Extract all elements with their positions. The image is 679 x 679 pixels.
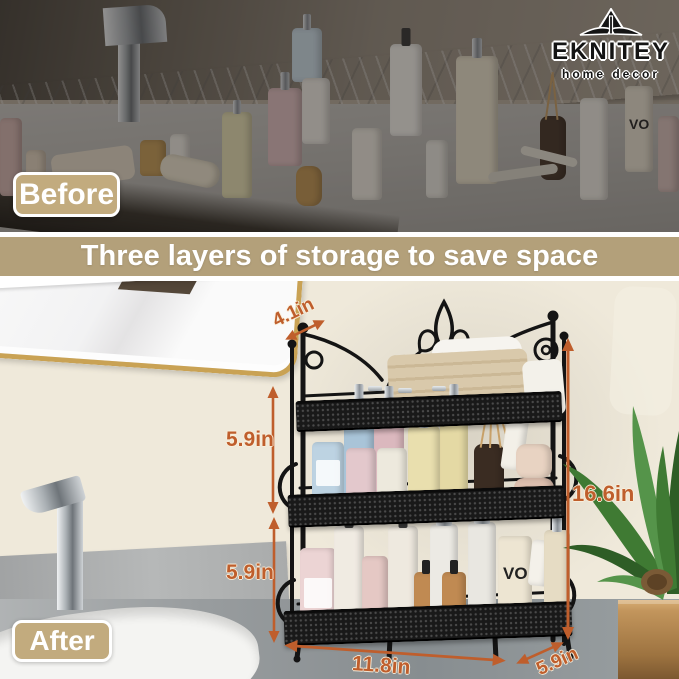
dropper-cap: [422, 560, 430, 574]
bottle-label: [316, 460, 340, 486]
width-label: 11.8in: [351, 652, 411, 679]
after-badge: After: [12, 620, 112, 662]
wooden-planter-box: [618, 600, 679, 679]
headline-text: Three layers of storage to save space: [81, 240, 598, 273]
lower-tier-label: 5.9in: [226, 561, 274, 585]
upper-tier-label: 5.9in: [226, 428, 274, 452]
headline-banner: Three layers of storage to save space: [0, 237, 679, 276]
faucet-body: [57, 498, 83, 610]
pine-tree-logo-icon: [578, 8, 644, 38]
gold-frame-mirror: [0, 281, 309, 379]
vo-label: VO: [503, 564, 528, 584]
dropper-cap: [450, 560, 458, 574]
brand-logo: EKNITEY home decor: [551, 8, 671, 81]
after-photo: VO 4.1in: [0, 281, 679, 679]
pump-spout: [368, 386, 382, 391]
pump-spout: [432, 386, 446, 391]
brand-name: EKNITEY: [551, 38, 671, 66]
product-image: VO EKNITEY home decor Before Three layer…: [0, 0, 679, 679]
pump-spout: [398, 388, 412, 393]
total-height-label: 16.6in: [572, 481, 634, 507]
before-badge: Before: [13, 172, 120, 217]
before-photo: VO EKNITEY home decor Before: [0, 0, 679, 232]
brand-tagline: home decor: [551, 67, 671, 81]
bottle-label: [304, 578, 331, 608]
mirror-reflection-dark: [118, 281, 251, 294]
